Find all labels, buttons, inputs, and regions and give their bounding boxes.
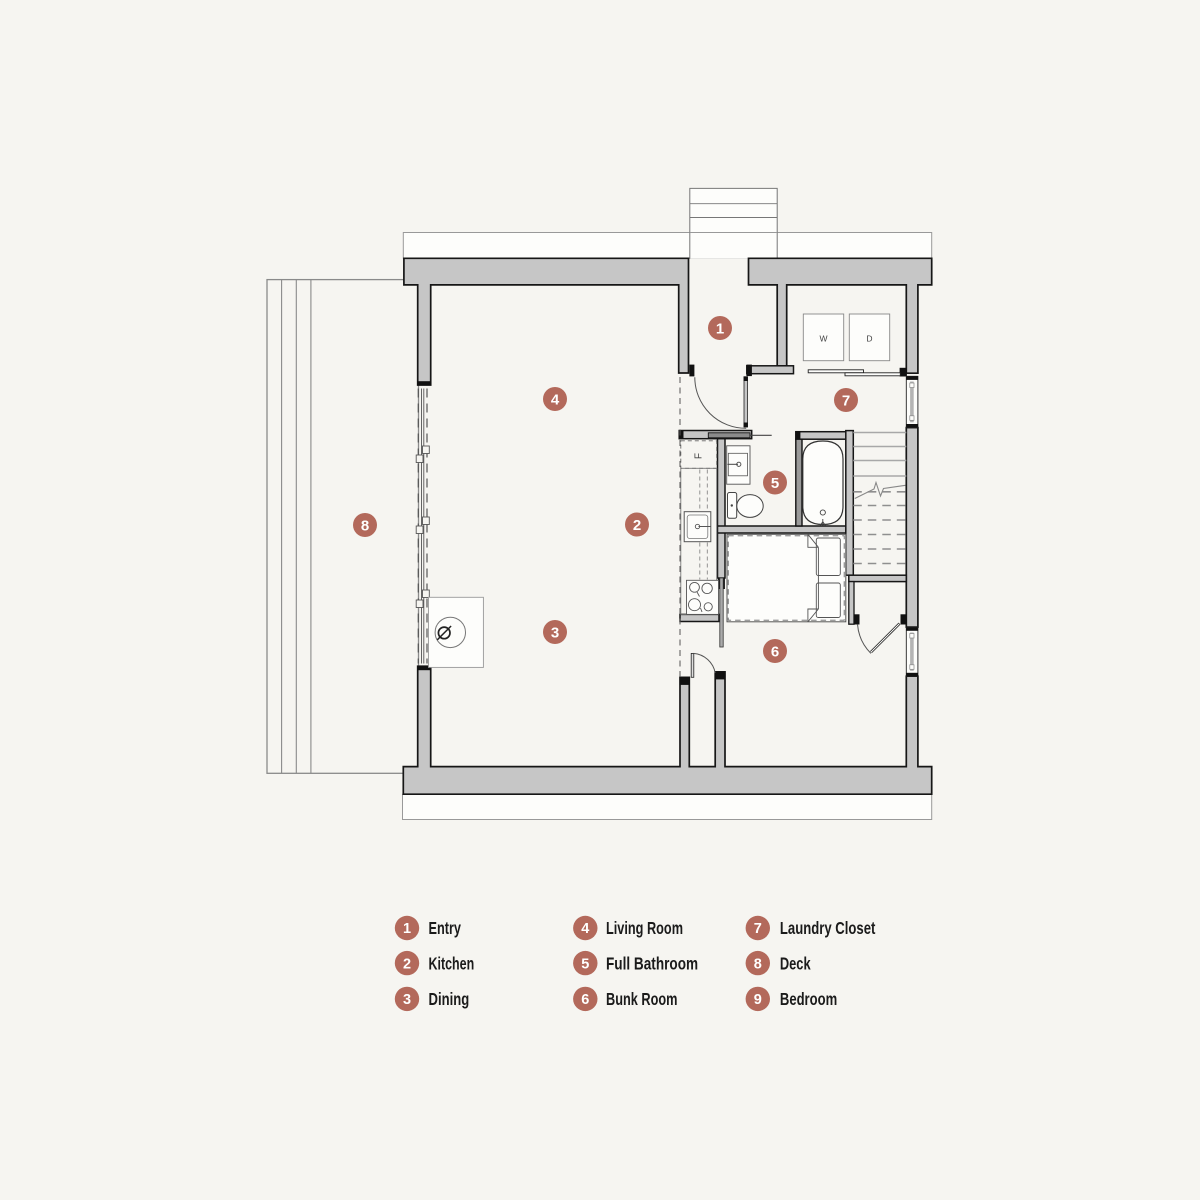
svg-text:6: 6: [581, 992, 589, 1008]
svg-text:1: 1: [403, 921, 411, 937]
svg-text:7: 7: [842, 392, 850, 409]
svg-text:3: 3: [551, 624, 559, 641]
svg-text:9: 9: [754, 992, 762, 1008]
svg-text:Bunk Room: Bunk Room: [606, 989, 678, 1009]
svg-text:8: 8: [754, 956, 762, 972]
svg-text:7: 7: [754, 921, 762, 937]
svg-text:4: 4: [551, 391, 560, 408]
svg-text:W: W: [819, 334, 827, 344]
svg-text:2: 2: [633, 517, 641, 534]
svg-text:Kitchen: Kitchen: [429, 953, 475, 973]
svg-text:D: D: [866, 334, 872, 344]
svg-text:F: F: [694, 453, 705, 459]
svg-text:5: 5: [581, 956, 589, 972]
svg-text:6: 6: [771, 643, 779, 660]
svg-text:8: 8: [361, 517, 369, 534]
svg-text:Bedroom: Bedroom: [780, 989, 837, 1009]
svg-text:Laundry Closet: Laundry Closet: [780, 918, 876, 938]
svg-text:3: 3: [403, 992, 411, 1008]
svg-text:2: 2: [403, 956, 411, 972]
svg-text:Living Room: Living Room: [606, 918, 683, 938]
svg-text:Deck: Deck: [780, 953, 811, 973]
svg-text:Entry: Entry: [429, 918, 462, 938]
svg-text:Full Bathroom: Full Bathroom: [606, 953, 698, 973]
svg-text:Dining: Dining: [429, 989, 470, 1009]
svg-text:1: 1: [716, 320, 724, 337]
svg-text:4: 4: [581, 921, 589, 937]
svg-text:5: 5: [771, 475, 779, 492]
